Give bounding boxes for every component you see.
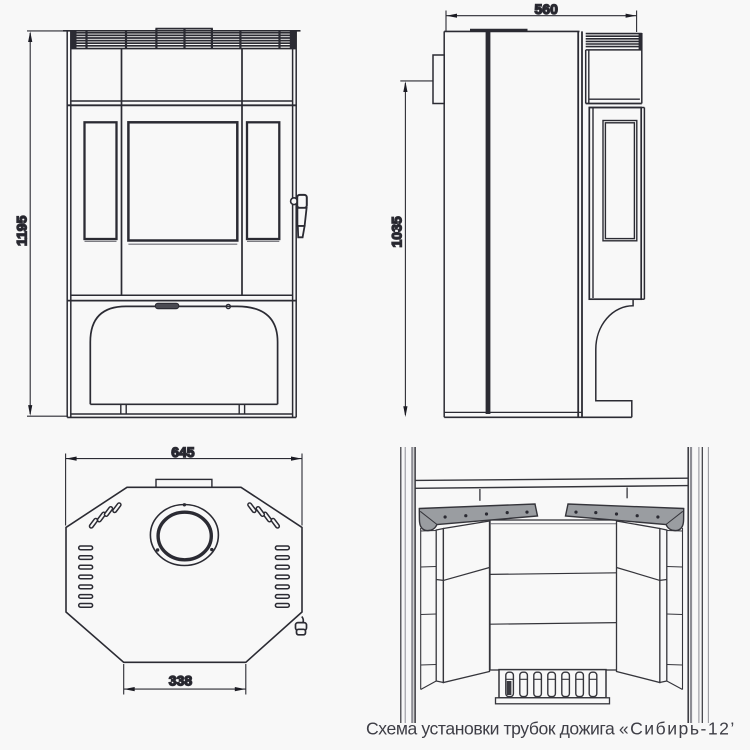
svg-text:1035: 1035 (389, 216, 405, 247)
svg-text:1195: 1195 (14, 215, 30, 246)
svg-text:Схема установки трубок дожига: Схема установки трубок дожига «Сибирь-12… (366, 719, 734, 739)
svg-text:560: 560 (535, 1, 559, 17)
svg-text:338: 338 (169, 673, 193, 689)
svg-text:645: 645 (171, 444, 195, 460)
